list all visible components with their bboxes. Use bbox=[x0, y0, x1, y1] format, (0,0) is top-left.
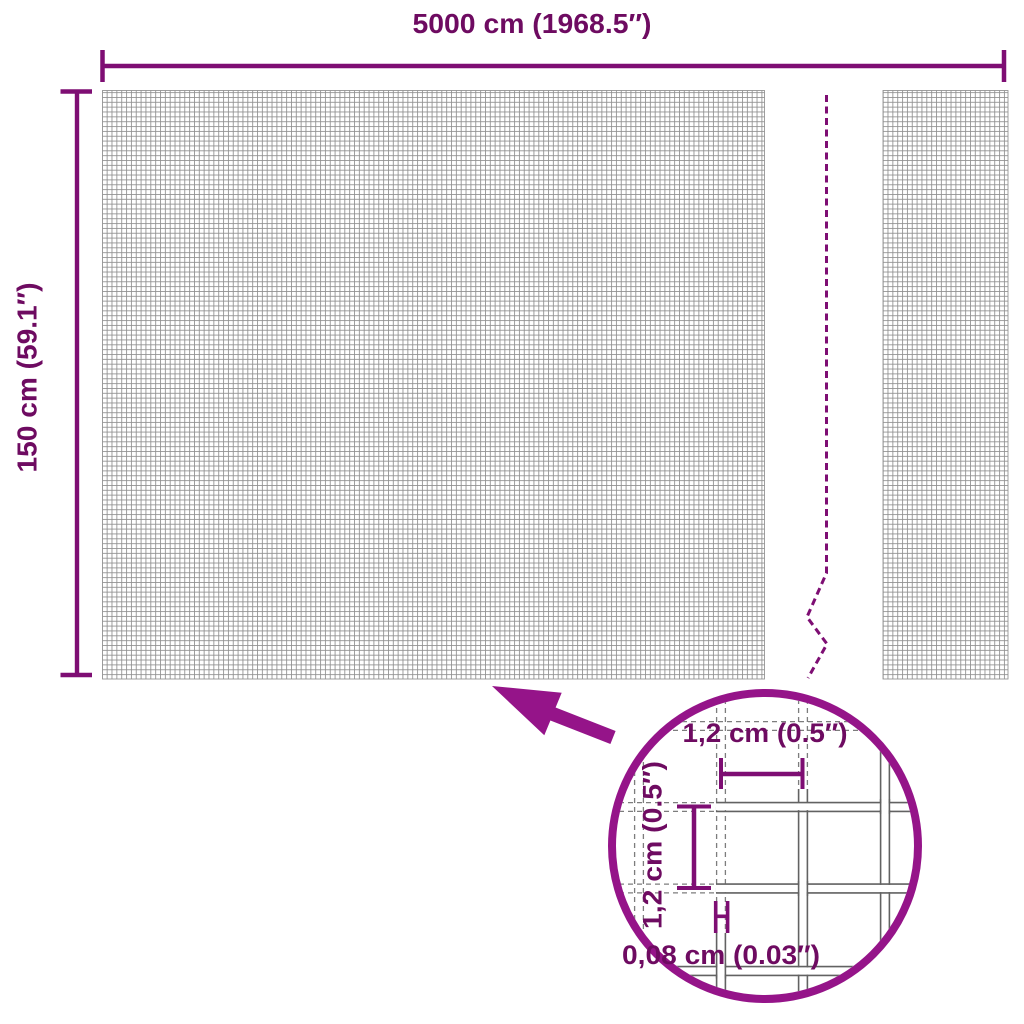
svg-text:0,08 cm (0.03″): 0,08 cm (0.03″) bbox=[622, 940, 820, 970]
svg-text:1,2 cm (0.5″): 1,2 cm (0.5″) bbox=[638, 761, 668, 929]
svg-text:5000 cm (1968.5″): 5000 cm (1968.5″) bbox=[413, 8, 652, 39]
svg-text:150 cm (59.1″): 150 cm (59.1″) bbox=[12, 283, 43, 473]
svg-text:1,2 cm (0.5″): 1,2 cm (0.5″) bbox=[683, 718, 848, 748]
